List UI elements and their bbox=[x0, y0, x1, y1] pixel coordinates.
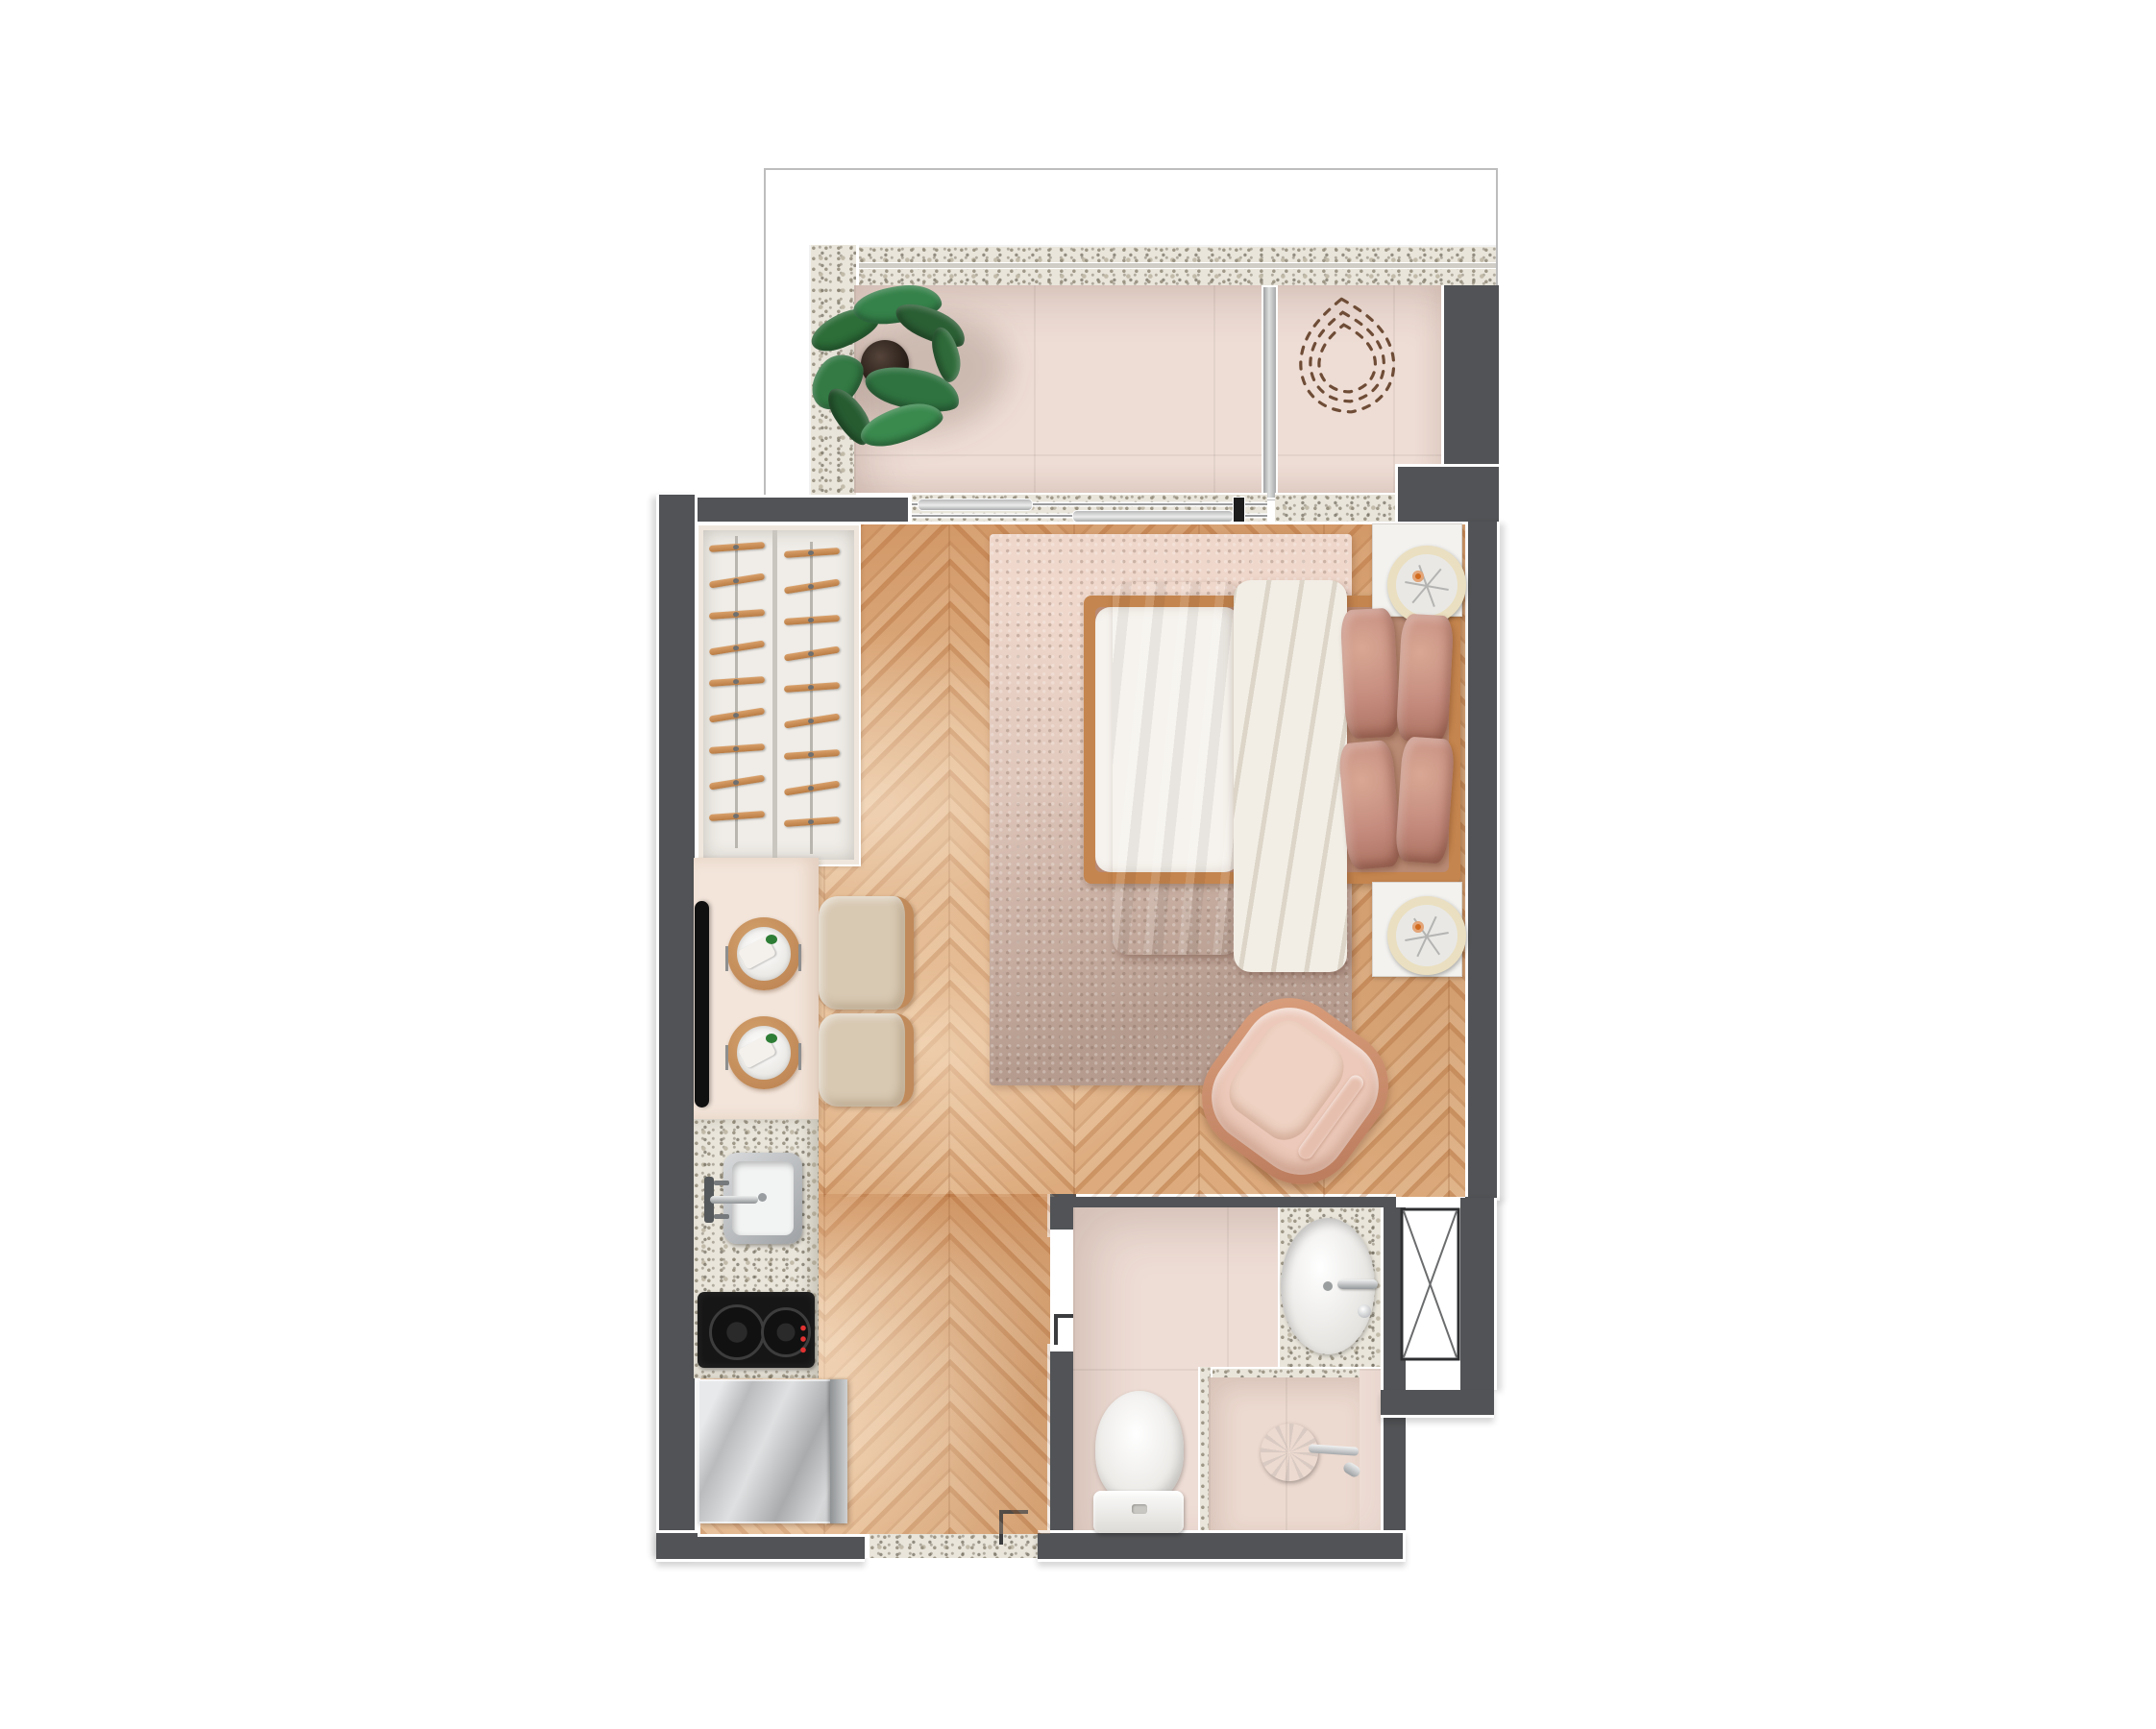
bed-pillow bbox=[1396, 614, 1455, 743]
bathroom-left-wall-lower bbox=[1047, 1352, 1076, 1534]
sink-drain bbox=[1323, 1281, 1333, 1291]
refrigerator-hinge bbox=[830, 1379, 847, 1523]
decor-fan bbox=[1387, 896, 1466, 975]
parapet-groove bbox=[809, 263, 1496, 268]
faucet-arm bbox=[710, 1196, 758, 1204]
hanger-hook bbox=[733, 645, 740, 651]
wardrobe-divider bbox=[772, 530, 777, 860]
duct-shaft bbox=[1400, 1207, 1460, 1361]
cutlery bbox=[798, 1043, 801, 1070]
cutlery bbox=[725, 946, 728, 971]
dining-chair bbox=[819, 896, 914, 1010]
toilet-bowl bbox=[1095, 1391, 1184, 1504]
bed-pillow bbox=[1340, 608, 1401, 740]
garnish bbox=[766, 1034, 777, 1043]
shaft-right-wall bbox=[1460, 1198, 1497, 1390]
balcony-glass-partition bbox=[1262, 285, 1278, 499]
faucet-handle bbox=[714, 1181, 729, 1185]
potted-plant bbox=[805, 280, 983, 463]
bathroom-door-jamb bbox=[1047, 1344, 1073, 1352]
balcony-right-notch-wall bbox=[1395, 464, 1502, 524]
hanging-chair-outline bbox=[1274, 284, 1421, 440]
wardrobe-hanger-column bbox=[705, 536, 771, 848]
place-setting bbox=[727, 917, 800, 990]
shaft-bottom-wall bbox=[1381, 1390, 1494, 1418]
bathroom-door-jamb bbox=[1047, 1230, 1073, 1237]
cutlery bbox=[798, 944, 801, 971]
hanger-hook bbox=[808, 786, 815, 791]
indicator-lights bbox=[797, 1325, 809, 1353]
hanger-hook bbox=[808, 685, 814, 690]
hanger-hook bbox=[808, 752, 814, 757]
shower-head bbox=[1261, 1424, 1318, 1481]
hanger-hook bbox=[808, 651, 815, 657]
hanger-hook bbox=[733, 612, 739, 617]
hanger-hook bbox=[808, 718, 815, 724]
vanity-faucet-knob bbox=[1358, 1304, 1371, 1318]
bed-duvet bbox=[1234, 580, 1347, 972]
hanger-hook bbox=[733, 545, 739, 549]
hanger-hook bbox=[808, 819, 814, 824]
place-setting bbox=[727, 1016, 800, 1089]
bed-pillow bbox=[1395, 736, 1456, 864]
toilet bbox=[1091, 1391, 1188, 1535]
bed-blanket bbox=[1113, 582, 1239, 955]
dining-chair bbox=[819, 1013, 914, 1107]
wood-plank-column bbox=[950, 1194, 1050, 1534]
tv bbox=[695, 901, 709, 1108]
fan-hub bbox=[1412, 571, 1424, 582]
hanger-hook bbox=[733, 679, 739, 684]
hanger-hook bbox=[733, 814, 739, 818]
hanger-hook bbox=[733, 746, 739, 751]
balcony-right-wall bbox=[1441, 285, 1502, 464]
hanger-hook bbox=[733, 713, 740, 718]
faucet-handle bbox=[714, 1214, 729, 1219]
wardrobe-hanger-column bbox=[780, 542, 845, 854]
burner bbox=[709, 1304, 765, 1360]
cutlery bbox=[725, 1045, 728, 1070]
bathroom-left-wall-upper bbox=[1047, 1194, 1076, 1230]
hanger-hook bbox=[808, 584, 815, 590]
refrigerator bbox=[698, 1379, 847, 1523]
left-wall bbox=[656, 495, 698, 1556]
hanger-hook bbox=[733, 780, 740, 786]
kitchen-faucet bbox=[704, 1177, 762, 1223]
cooktop bbox=[698, 1292, 815, 1368]
hanger-hook bbox=[808, 550, 814, 555]
wardrobe bbox=[698, 525, 859, 864]
garnish bbox=[766, 935, 777, 944]
hanger-hook bbox=[808, 618, 814, 622]
fan-hub bbox=[1412, 921, 1424, 933]
bed-pillow bbox=[1337, 740, 1402, 870]
toilet-flush-button bbox=[1132, 1504, 1147, 1514]
sliding-panel bbox=[918, 499, 1033, 511]
decor-fan bbox=[1387, 546, 1466, 624]
floor-plan-stage bbox=[0, 0, 2156, 1729]
hanger-hook bbox=[733, 578, 740, 584]
vanity-faucet bbox=[1337, 1279, 1378, 1289]
